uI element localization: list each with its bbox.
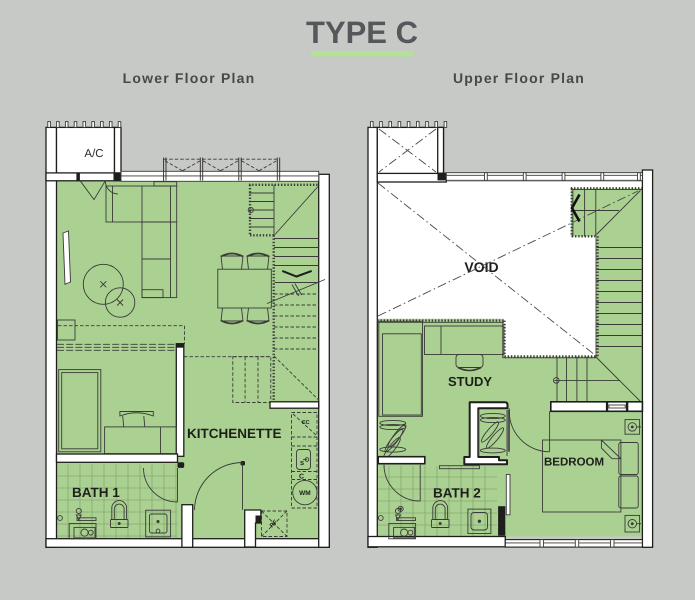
- svg-text:C: C: [299, 474, 304, 481]
- svg-text:STUDY: STUDY: [448, 374, 492, 389]
- svg-text:BEDROOM: BEDROOM: [544, 457, 604, 469]
- svg-text:EC: EC: [302, 420, 310, 426]
- svg-text:KITCHENETTE: KITCHENETTE: [187, 426, 282, 441]
- svg-text:Upper Floor Plan: Upper Floor Plan: [453, 70, 585, 86]
- svg-text:S: S: [300, 460, 304, 467]
- svg-text:A/C: A/C: [84, 148, 103, 160]
- svg-text:Lower Floor Plan: Lower Floor Plan: [123, 70, 256, 86]
- svg-text:BATH 2: BATH 2: [433, 486, 481, 501]
- svg-text:VOID: VOID: [464, 259, 498, 275]
- svg-text:TYPE C: TYPE C: [306, 15, 418, 50]
- svg-text:BATH 1: BATH 1: [72, 485, 120, 500]
- svg-text:WM: WM: [299, 490, 311, 497]
